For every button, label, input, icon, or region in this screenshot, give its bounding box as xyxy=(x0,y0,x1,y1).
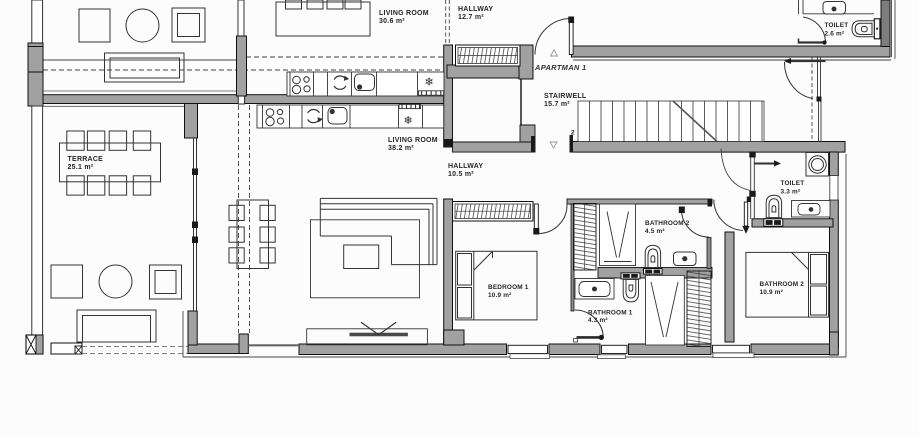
svg-text:38.2 m²: 38.2 m² xyxy=(388,145,414,152)
svg-text:HALLWAY: HALLWAY xyxy=(448,163,483,170)
svg-text:TOILET: TOILET xyxy=(825,22,849,29)
svg-text:4.3 m²: 4.3 m² xyxy=(588,317,608,324)
svg-text:15.7 m²: 15.7 m² xyxy=(544,101,570,108)
svg-text:BATHROOM 2: BATHROOM 2 xyxy=(760,281,805,288)
svg-text:10.5 m²: 10.5 m² xyxy=(448,171,474,178)
svg-text:❄: ❄ xyxy=(425,77,434,89)
svg-text:TOILET: TOILET xyxy=(781,180,805,187)
svg-text:12.7 m²: 12.7 m² xyxy=(458,14,484,21)
svg-text:❄: ❄ xyxy=(404,115,413,127)
svg-text:LIVING ROOM: LIVING ROOM xyxy=(388,137,438,144)
svg-text:TERRACE: TERRACE xyxy=(68,156,104,163)
svg-text:APARTMAN 1: APARTMAN 1 xyxy=(534,63,586,72)
svg-text:10.9 m²: 10.9 m² xyxy=(760,289,783,296)
svg-text:BATHROOM 2: BATHROOM 2 xyxy=(645,220,690,227)
svg-text:10.9 m²: 10.9 m² xyxy=(488,292,511,299)
svg-text:2: 2 xyxy=(571,130,575,137)
svg-text:BEDROOM 1: BEDROOM 1 xyxy=(488,284,529,291)
svg-text:4.5 m²: 4.5 m² xyxy=(645,228,665,235)
svg-text:LIVING ROOM: LIVING ROOM xyxy=(379,10,429,17)
svg-text:2.6 m²: 2.6 m² xyxy=(825,31,845,38)
svg-text:HALLWAY: HALLWAY xyxy=(458,6,493,13)
svg-text:STAIRWELL: STAIRWELL xyxy=(544,93,587,100)
svg-text:25.1 m²: 25.1 m² xyxy=(68,164,94,171)
svg-text:3.3 m²: 3.3 m² xyxy=(781,189,801,196)
svg-text:BATHROOM 1: BATHROOM 1 xyxy=(588,310,633,317)
svg-text:30.6 m²: 30.6 m² xyxy=(379,18,405,25)
